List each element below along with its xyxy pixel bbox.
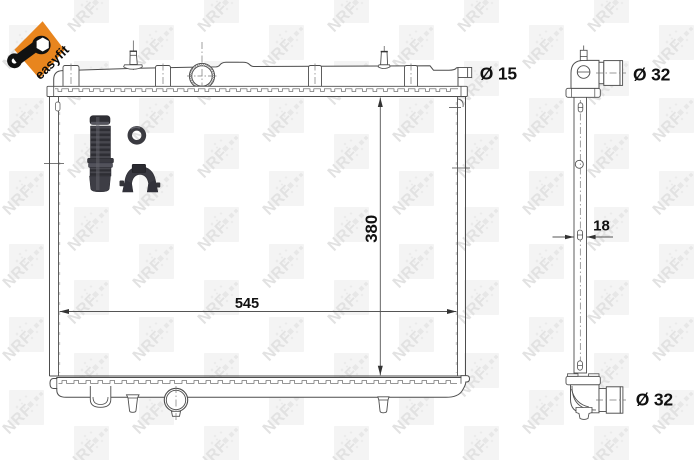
svg-text:18: 18 bbox=[593, 218, 610, 235]
svg-text:Ø 32: Ø 32 bbox=[636, 390, 674, 410]
svg-text:380: 380 bbox=[362, 215, 381, 243]
svg-text:545: 545 bbox=[235, 296, 259, 312]
svg-text:Ø 32: Ø 32 bbox=[633, 65, 671, 85]
svg-text:Ø 15: Ø 15 bbox=[480, 64, 518, 84]
